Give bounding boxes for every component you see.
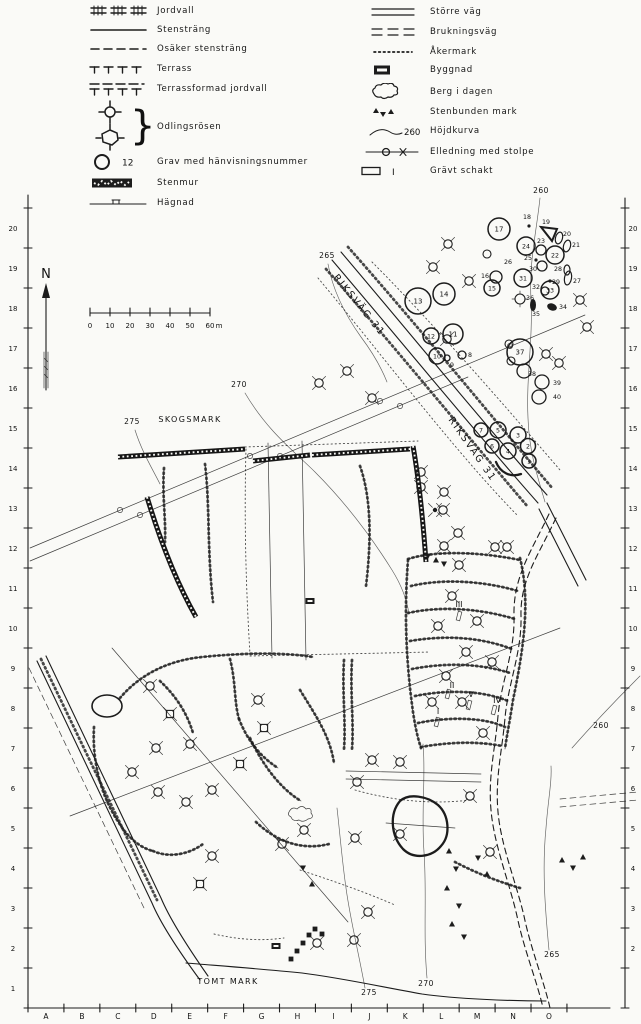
scale-tick-50: 50 xyxy=(186,322,195,330)
schakt-icon xyxy=(466,700,472,710)
grid-number-right-4: 4 xyxy=(631,865,636,873)
grave-number-27: 27 xyxy=(573,278,581,285)
map-label-v: V xyxy=(468,690,474,699)
grid-number-right-3: 3 xyxy=(631,905,635,913)
odlingsrose-icon xyxy=(361,905,374,918)
map-label-ii: II xyxy=(450,681,455,690)
stenbunden-icon xyxy=(444,885,450,891)
stone-chain xyxy=(289,927,325,962)
schakt-icon xyxy=(491,705,497,715)
map-label-270: 270 xyxy=(231,380,247,389)
grid-number-left-2: 2 xyxy=(11,945,15,953)
scale-tick-20: 20 xyxy=(126,322,135,330)
scale-tick-0: 0 xyxy=(88,322,92,330)
odlingsrose-icon xyxy=(437,539,450,552)
map-linework xyxy=(29,198,640,1008)
grave-number-19: 19 xyxy=(542,219,550,226)
grid-number-left-10: 10 xyxy=(9,625,18,633)
grave-number-21: 21 xyxy=(572,242,580,249)
grid-number-right-6: 6 xyxy=(631,785,636,793)
map-label-265: 265 xyxy=(544,950,560,959)
scale-tick-30: 30 xyxy=(146,322,155,330)
odlingsrose-icon xyxy=(347,933,360,946)
grid-number-left-6: 6 xyxy=(11,785,16,793)
grid-number-left-18: 18 xyxy=(9,305,18,313)
odlingsrose-icon xyxy=(297,823,310,836)
odlingsrose-icon xyxy=(393,827,406,840)
grave-number-30: 30 xyxy=(529,266,537,273)
byggnad-icon xyxy=(272,943,281,949)
grave-number-9: 9 xyxy=(450,362,454,369)
map-canvas: 2019181716151413121110987654321201918171… xyxy=(0,0,641,1024)
grid-number-left-7: 7 xyxy=(11,745,15,753)
grave-number-20: 20 xyxy=(563,231,571,238)
map-label-275: 275 xyxy=(361,988,377,997)
stenbunden-icon xyxy=(449,921,455,927)
map-label-270: 270 xyxy=(418,979,434,988)
odlingsrose-icon xyxy=(462,274,475,287)
grave-30 xyxy=(537,261,547,271)
stenbunden-icon xyxy=(456,904,462,910)
grave-number-7: 7 xyxy=(479,427,483,434)
grid-number-left-1: 1 xyxy=(11,985,15,993)
grave-number-36: 36 xyxy=(526,295,534,302)
odlingsrose-icon xyxy=(488,540,501,553)
stenbunden-icon xyxy=(309,881,315,887)
north-arrow xyxy=(42,283,50,390)
odlingsrose-icon xyxy=(193,877,206,890)
grid-number-right-15: 15 xyxy=(629,425,638,433)
grave-number-22: 22 xyxy=(551,252,559,259)
grid-number-left-13: 13 xyxy=(9,505,18,513)
grid-letter-k: K xyxy=(403,1012,409,1021)
odlingsrose-icon xyxy=(470,614,483,627)
odlingsrose-icon xyxy=(426,260,439,273)
grid-number-right-20: 20 xyxy=(629,225,638,233)
grave-number-38: 38 xyxy=(528,371,536,378)
odlingsrose-icon xyxy=(500,540,513,553)
byggnad-icon xyxy=(306,598,315,604)
grid-number-left-20: 20 xyxy=(9,225,18,233)
odlingsrose-icon xyxy=(365,391,378,404)
grave-number-40: 40 xyxy=(553,394,561,401)
grid-letter-h: H xyxy=(295,1012,301,1021)
grave-number-31: 31 xyxy=(519,275,527,282)
odlingsrose-icon xyxy=(459,645,472,658)
odlingsrose-icon xyxy=(485,655,498,668)
odlingsrose-icon xyxy=(431,619,444,632)
grid-letter-m: M xyxy=(474,1012,480,1021)
grave-number-32: 32 xyxy=(532,284,540,291)
odlingsrose-icon xyxy=(452,558,465,571)
odlingsrose-icon xyxy=(183,737,196,750)
grave-number-2: 2 xyxy=(526,443,530,450)
scale-tick-10: 10 xyxy=(106,322,115,330)
grave-28 xyxy=(564,265,570,275)
stenbunden-icon xyxy=(475,856,481,862)
grave-34 xyxy=(546,302,558,312)
odlingsrose-icon xyxy=(205,783,218,796)
grid-number-right-13: 13 xyxy=(629,505,638,513)
odlingsrose-icon xyxy=(552,356,565,369)
odlingsrose-icon xyxy=(573,293,586,306)
grid-letter-o: O xyxy=(546,1012,552,1021)
grave-number-8: 8 xyxy=(468,352,472,359)
grid-letter-i: I xyxy=(332,1012,334,1021)
odlingsrose-icon xyxy=(428,503,441,516)
grave-number-13: 13 xyxy=(414,297,423,305)
odlingsrose-icon xyxy=(205,849,218,862)
odlingsrose-icon xyxy=(348,831,361,844)
grave-21 xyxy=(562,239,572,252)
grave-number-14: 14 xyxy=(440,290,449,298)
stenbunden-icon xyxy=(433,557,439,563)
odlingsrose-icon xyxy=(340,364,353,377)
odlingsrose-icon xyxy=(233,757,246,770)
scale-unit: m xyxy=(216,322,223,330)
grave-number-35: 35 xyxy=(532,311,540,318)
grid-letter-l: L xyxy=(439,1012,444,1021)
grid-number-right-11: 11 xyxy=(629,585,638,593)
grid-number-right-19: 19 xyxy=(629,265,638,273)
odlingsrose-icon xyxy=(483,845,496,858)
odlingsrose-icon xyxy=(350,775,363,788)
grid-number-right-8: 8 xyxy=(631,705,635,713)
odlingsrose-icon xyxy=(143,679,156,692)
grid-letter-e: E xyxy=(187,1012,192,1021)
grave-number-26: 26 xyxy=(504,259,512,266)
odlingsrose-icon xyxy=(151,785,164,798)
stenbunden-icon xyxy=(441,562,447,568)
map-label-iii: III xyxy=(455,600,462,609)
stenbunden-icon xyxy=(570,866,576,872)
grid-letter-j: J xyxy=(367,1012,370,1021)
grave-number-6: 6 xyxy=(490,443,494,450)
grid-letter-b: B xyxy=(79,1012,84,1021)
grid-number-left-9: 9 xyxy=(11,665,15,673)
grave-23 xyxy=(536,245,546,255)
odlingsrose-icon xyxy=(275,837,288,850)
odlingsrose-icon xyxy=(365,753,378,766)
grid-number-left-11: 11 xyxy=(9,585,18,593)
grave-number-17: 17 xyxy=(495,225,504,233)
grid-letter-a: A xyxy=(43,1012,49,1021)
grid-number-right-16: 16 xyxy=(629,385,638,393)
stenbunden-icon xyxy=(559,857,565,863)
grid-number-right-9: 9 xyxy=(631,665,635,673)
grave-39 xyxy=(535,375,549,389)
grave-number-16: 16 xyxy=(481,273,489,280)
stenbunden-icon xyxy=(484,871,490,877)
schakt-icon xyxy=(456,611,462,621)
map-label-260: 260 xyxy=(593,721,609,730)
map-label-tomt-mark: TOMT MARK xyxy=(196,977,258,986)
grave-number-11: 11 xyxy=(449,330,458,338)
odlingsrose-icon xyxy=(441,237,454,250)
grid-number-left-4: 4 xyxy=(11,865,16,873)
odlingsrose-icon xyxy=(310,936,323,949)
odlingsrose-icon xyxy=(437,485,450,498)
map-label-265: 265 xyxy=(319,251,335,260)
grave-number-24: 24 xyxy=(522,243,530,250)
map-label-i: I xyxy=(437,707,439,716)
grid-number-right-14: 14 xyxy=(629,465,638,473)
odlingsrose-icon xyxy=(393,755,406,768)
grid-letter-d: D xyxy=(151,1012,157,1021)
stenbunden-icon xyxy=(453,867,459,873)
odlingsrose-icon xyxy=(436,503,449,516)
grave-number-10: 10 xyxy=(433,353,441,360)
grave-number-1: 1 xyxy=(527,458,531,465)
odlingsrose-icon xyxy=(414,465,427,478)
odlingsrose-icon xyxy=(463,789,476,802)
grave-25 xyxy=(534,258,537,261)
grid-letter-g: G xyxy=(259,1012,265,1021)
stenbunden-icon xyxy=(461,935,467,941)
grid-number-right-17: 17 xyxy=(629,345,638,353)
grid-letter-n: N xyxy=(510,1012,516,1021)
odlingsrose-icon xyxy=(179,795,192,808)
odlingsrose-icon xyxy=(251,693,264,706)
grid-number-left-16: 16 xyxy=(9,385,18,393)
grave-number-5: 5 xyxy=(496,427,500,434)
grave-number-4: 4 xyxy=(506,448,510,455)
map-label-260: 260 xyxy=(533,186,549,195)
grid-number-left-15: 15 xyxy=(9,425,18,433)
stenbunden-icon xyxy=(446,848,452,854)
grid-number-right-5: 5 xyxy=(631,825,635,833)
map-label-skogsmark: SKOGSMARK xyxy=(158,415,221,424)
grave-number-29: 29 xyxy=(552,279,560,286)
odlingsrose-icon xyxy=(312,376,325,389)
north-label: N xyxy=(41,267,51,282)
grid-number-left-12: 12 xyxy=(9,545,18,553)
grave-number-12: 12 xyxy=(427,333,435,340)
odlingsrose-icon xyxy=(476,726,489,739)
odlingsrose-icon xyxy=(163,707,176,720)
grid-number-left-19: 19 xyxy=(9,265,18,273)
grave-number-25: 25 xyxy=(524,255,532,262)
stenbunden-icon xyxy=(580,854,586,860)
grid-number-left-17: 17 xyxy=(9,345,18,353)
grave-number-39: 39 xyxy=(553,380,561,387)
grid-number-left-8: 8 xyxy=(11,705,15,713)
grave-number-18: 18 xyxy=(523,214,531,221)
grid-number-right-18: 18 xyxy=(629,305,638,313)
grave-number-15: 15 xyxy=(488,285,496,292)
grave-40 xyxy=(532,390,546,404)
grave-number-28: 28 xyxy=(554,266,562,273)
map-label-275: 275 xyxy=(124,417,140,426)
grave-18 xyxy=(527,224,530,227)
survey-map-document: Jordvall Stensträng Osäker stensträng Te… xyxy=(0,0,641,1024)
scale-tick-40: 40 xyxy=(166,322,175,330)
odlingsrose-icon xyxy=(539,347,552,360)
grave-number-23: 23 xyxy=(537,238,545,245)
grid-number-left-14: 14 xyxy=(9,465,18,473)
odlingsrose-icon xyxy=(257,721,270,734)
odlingsrose-icon xyxy=(451,526,464,539)
grid-number-right-2: 2 xyxy=(631,945,635,953)
grave-number-33: 33 xyxy=(546,287,554,294)
grave-number-37: 37 xyxy=(516,348,525,356)
scale-tick-60: 60 xyxy=(206,322,215,330)
odlingsrose-icon xyxy=(125,765,138,778)
grid-number-left-5: 5 xyxy=(11,825,15,833)
grave-number-34: 34 xyxy=(559,304,567,311)
odlingsrose-icon xyxy=(580,320,593,333)
scale-bar xyxy=(90,308,210,316)
grid-letter-f: F xyxy=(223,1012,227,1021)
map-label-iv: IV xyxy=(493,696,501,705)
grid-number-right-10: 10 xyxy=(629,625,638,633)
grave-number-3: 3 xyxy=(516,432,520,439)
grid-number-right-7: 7 xyxy=(631,745,635,753)
odlingsrose-icon xyxy=(149,741,162,754)
grid-letter-c: C xyxy=(115,1012,120,1021)
grid-number-right-12: 12 xyxy=(629,545,638,553)
grid-number-left-3: 3 xyxy=(11,905,15,913)
